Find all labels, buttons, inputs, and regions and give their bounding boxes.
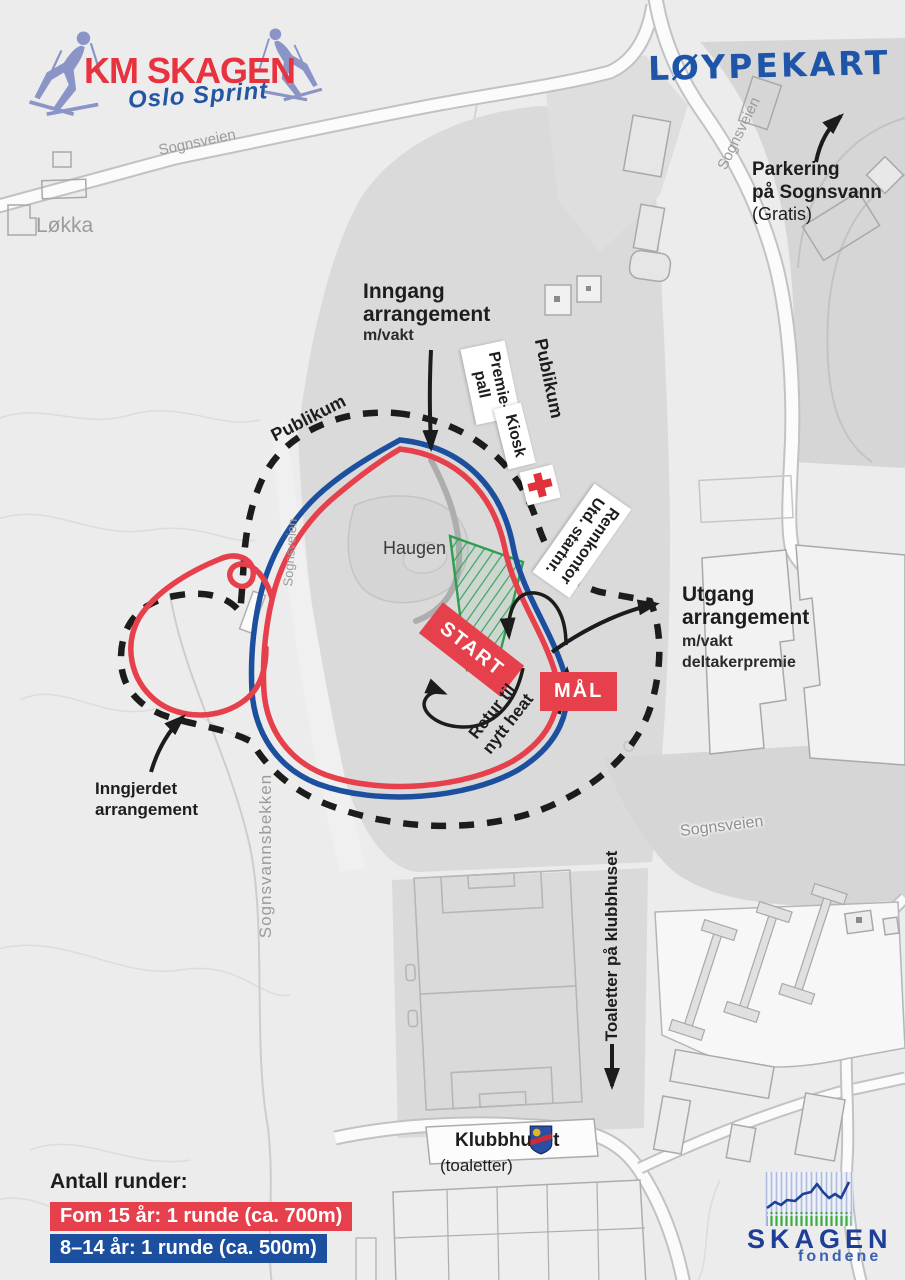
- skagen-logo-subtitle: fondene: [798, 1248, 881, 1266]
- legend: Antall runder: Fom 15 år: 1 runde (ca. 7…: [50, 1170, 352, 1263]
- legend-title: Antall runder:: [50, 1170, 352, 1194]
- parking-note: Parkering på Sognsvann (Gratis): [752, 158, 882, 226]
- club-crest-icon: [528, 1124, 554, 1156]
- entrance-line3: m/vakt: [363, 326, 490, 347]
- exit-line1: Utgang: [682, 584, 809, 607]
- fenced-area-line1: Inngjerdet: [95, 778, 198, 799]
- exit-note: Utgang arrangement m/vakt deltakerpremie: [682, 584, 809, 674]
- clubhouse-note: (toaletter): [440, 1156, 513, 1176]
- entrance-arrow: [430, 350, 431, 448]
- legend-item-short-course: 8–14 år: 1 runde (ca. 500m): [50, 1234, 327, 1263]
- exit-line4: deltakerpremie: [682, 653, 809, 674]
- parking-line2: på Sognsvann: [752, 181, 882, 204]
- stream-label-sognsvannsbekken: Sognsvannsbekken: [256, 766, 276, 946]
- entrance-line2: arrangement: [363, 304, 490, 327]
- parking-line1: Parkering: [752, 158, 882, 181]
- place-label-lokka: Løkka: [36, 214, 93, 238]
- fenced-area-line2: arrangement: [95, 799, 198, 820]
- legend-item-long-course: Fom 15 år: 1 runde (ca. 700m): [50, 1202, 352, 1231]
- parking-line3: (Gratis): [752, 204, 882, 226]
- toilets-note: Toaletter på klubbhuset: [602, 836, 622, 1056]
- entrance-line1: Inngang: [363, 281, 490, 304]
- place-label-haugen: Haugen: [383, 538, 446, 559]
- skagen-chart-icon: [765, 1172, 853, 1226]
- map-title: LØYPEKART: [648, 43, 891, 88]
- exit-line2: arrangement: [682, 607, 809, 630]
- exit-line3: m/vakt: [682, 632, 809, 653]
- finish-marker: MÅL: [540, 672, 617, 711]
- entrance-note: Inngang arrangement m/vakt: [363, 281, 490, 347]
- fenced-area-note: Inngjerdet arrangement: [95, 778, 198, 821]
- course-map-poster: KM SKAGEN Oslo Sprint LØYPEKART Parkerin…: [0, 0, 905, 1280]
